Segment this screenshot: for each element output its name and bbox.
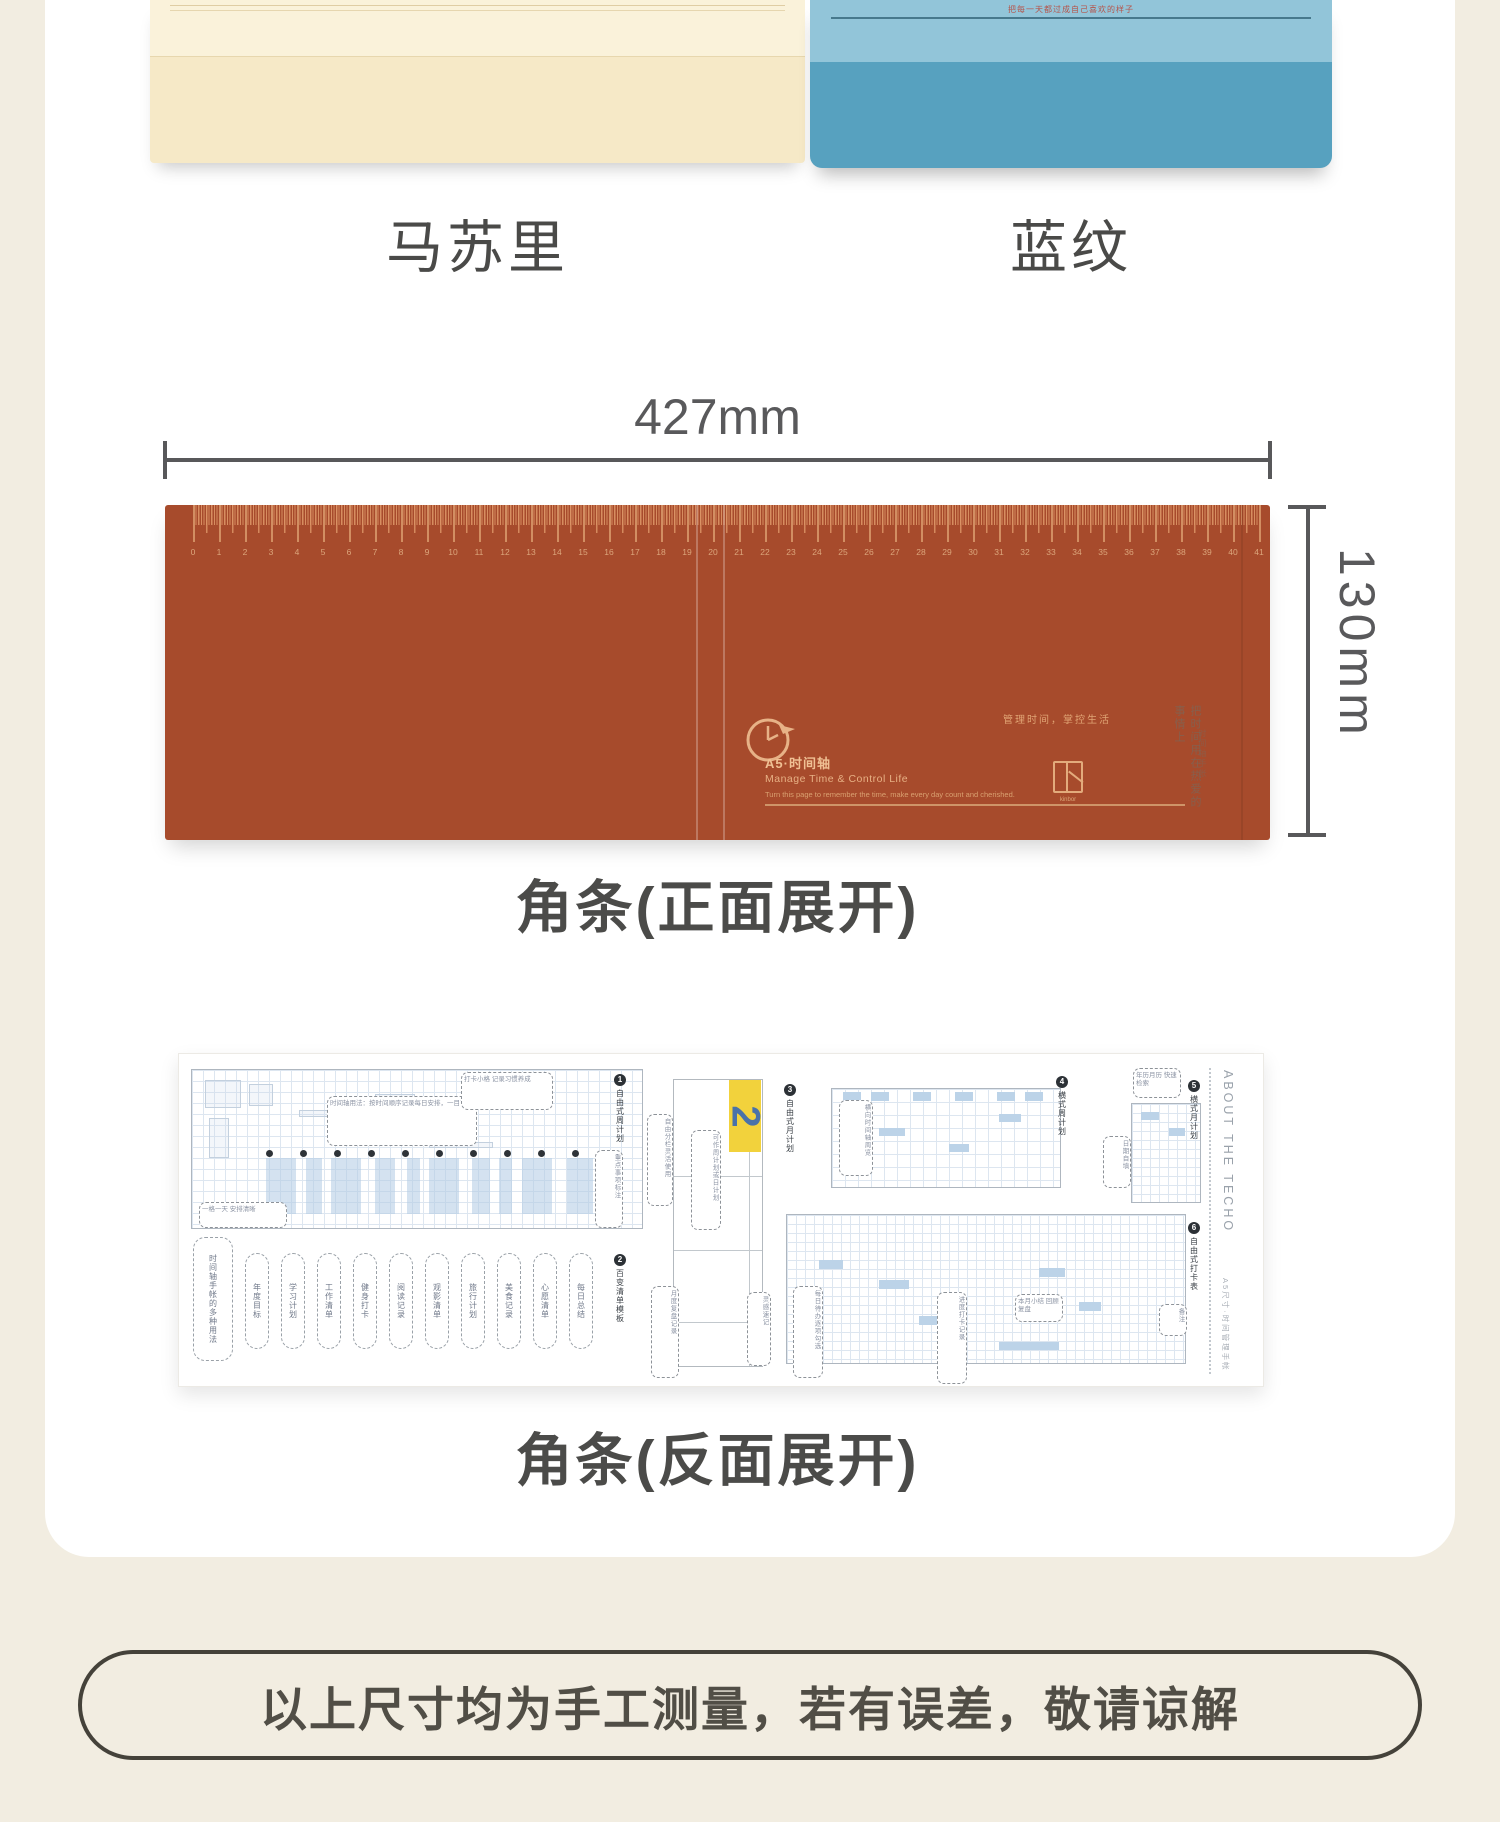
timeline-band (429, 1158, 459, 1214)
ruler-number: 8 (392, 547, 410, 557)
timeline-dot (334, 1150, 341, 1157)
page-number-block: 2 (729, 1080, 761, 1152)
timeline-dot (504, 1150, 511, 1157)
ruler-number: 16 (600, 547, 618, 557)
ruler-number: 7 (366, 547, 384, 557)
about-dotted-divider (1209, 1068, 1211, 1374)
ruler-cm-tick (921, 505, 923, 542)
strip-underline (765, 804, 1185, 806)
dimension-tick (1288, 833, 1326, 837)
timeline-dot (266, 1150, 273, 1157)
ruler-cm-tick (609, 505, 611, 542)
capsule-text: 观影清单 (432, 1283, 443, 1319)
ruler-number: 37 (1146, 547, 1164, 557)
table-highlight-cell (819, 1260, 843, 1269)
section-label-text: 百变清单模板 (615, 1269, 626, 1323)
section-label: 4横式周计划 (1055, 1076, 1069, 1136)
list-capsule: 健身打卡 (353, 1253, 377, 1349)
annotation-callout: 一格一天 安排清晰 (199, 1202, 287, 1228)
ruler-cm-tick (869, 505, 871, 542)
ruler-cm-tick (583, 505, 585, 542)
table-highlight-cell (913, 1092, 931, 1101)
section-number-badge: 5 (1188, 1080, 1200, 1092)
ruler-cm-tick (1155, 505, 1157, 542)
capsule-text: 旅行计划 (468, 1283, 479, 1319)
calendar-doodle (249, 1084, 273, 1106)
ruler-number: 28 (912, 547, 930, 557)
list-capsule: 工作清单 (317, 1253, 341, 1349)
ruler-number: 5 (314, 547, 332, 557)
dimension-tick (1268, 441, 1272, 479)
table-highlight-cell (1141, 1112, 1159, 1120)
section-number-badge: 1 (614, 1074, 626, 1086)
ruler-cm-tick (1051, 505, 1053, 542)
annotation-callout: 每日待办逐项勾选 (793, 1286, 823, 1378)
ruler-number: 13 (522, 547, 540, 557)
disclaimer-box: 以上尺寸均为手工测量，若有误差，敬请谅解 (78, 1650, 1422, 1760)
ruler-cm-tick (1077, 505, 1079, 542)
section-label-text: 自由式周计划 (615, 1089, 626, 1143)
ruler-cm-tick (791, 505, 793, 542)
calendar-doodle (209, 1118, 229, 1158)
strip-title-en: Manage Time & Control Life (765, 773, 908, 785)
annotation-callout: 时间轴用法：按时间顺序记录每日安排，一目了然 (327, 1096, 477, 1146)
ruler-cm-tick (947, 505, 949, 542)
ruler-cm-tick (843, 505, 845, 542)
brand-logo-icon (1053, 761, 1083, 793)
front-strip-caption: 角条(正面展开) (165, 862, 1270, 944)
ruler-number: 29 (938, 547, 956, 557)
timeline-dot (470, 1150, 477, 1157)
ruler-cm-tick (271, 505, 273, 542)
ruler-number: 36 (1120, 547, 1138, 557)
ruler-number: 11 (470, 547, 488, 557)
fold-line (723, 505, 725, 840)
timeline-dot (436, 1150, 443, 1157)
table-highlight-cell (997, 1092, 1015, 1101)
ruler-cm-tick (375, 505, 377, 542)
annotation-callout: 日期自填 (1103, 1136, 1131, 1188)
product-detail-page: 把每一天都过成自己喜欢的样子 马苏里 蓝纹 427mm 012345678910… (0, 0, 1500, 1822)
section-label-text: 横式月计划 (1189, 1095, 1200, 1140)
ruler-number: 25 (834, 547, 852, 557)
timeline-band (375, 1158, 395, 1214)
annotation-callout: 月度复盘记录 (651, 1286, 679, 1378)
ruler-number: 23 (782, 547, 800, 557)
ruler-number: 17 (626, 547, 644, 557)
ruler-cm-tick (193, 505, 195, 542)
annotation-callout: 可作周计划或日计划 (691, 1130, 721, 1230)
content-card: 把每一天都过成自己喜欢的样子 马苏里 蓝纹 427mm 012345678910… (45, 0, 1455, 1557)
section-label: 3自由式月计划 (783, 1084, 797, 1153)
notebook-photo-blue: 把每一天都过成自己喜欢的样子 (810, 0, 1332, 168)
vertical-note-small: 时间轴手帐 (1197, 729, 1208, 819)
disclaimer-text: 以上尺寸均为手工测量，若有误差，敬请谅解 (260, 1671, 1240, 1740)
capsule-text: 阅读记录 (396, 1283, 407, 1319)
annotation-callout: 横向时间轴周览 (839, 1100, 873, 1176)
ruler-cm-tick (739, 505, 741, 542)
page-number-text: 2 (723, 1105, 768, 1127)
cover-divider-line (831, 17, 1311, 19)
table-highlight-cell (879, 1280, 909, 1289)
section-number-badge: 4 (1056, 1076, 1068, 1088)
timeline-dot (402, 1150, 409, 1157)
section-number-badge: 6 (1188, 1222, 1200, 1234)
ruler-cm-tick (635, 505, 637, 542)
crease-line (1241, 505, 1243, 840)
ruler-mm-ticks (193, 505, 1261, 525)
ruler-number: 10 (444, 547, 462, 557)
table-highlight-cell (1169, 1128, 1185, 1136)
strip-slogan: 管理时间，掌控生活 (1003, 711, 1111, 726)
ruler-cm-tick (505, 505, 507, 542)
timeline-dot (572, 1150, 579, 1157)
list-capsule: 旅行计划 (461, 1253, 485, 1349)
ruler-cm-tick (1103, 505, 1105, 542)
ruler-cm-tick (1233, 505, 1235, 542)
table-highlight-cell (1025, 1092, 1043, 1101)
annotation-callout: 自由分栏灵活使用 (647, 1114, 673, 1206)
cover-stitch-line (170, 10, 786, 11)
ruler-number: 4 (288, 547, 306, 557)
timeline-band (306, 1158, 322, 1214)
width-dimension-label: 427mm (165, 388, 1270, 446)
timeline-band (567, 1158, 593, 1214)
ruler-number: 22 (756, 547, 774, 557)
timeline-dot (368, 1150, 375, 1157)
ruler-number: 38 (1172, 547, 1190, 557)
section-label: 1自由式周计划 (613, 1074, 627, 1143)
ruler-number: 26 (860, 547, 878, 557)
timeline-band (522, 1158, 552, 1214)
list-capsule: 心愿清单 (533, 1253, 557, 1349)
ruler-number: 24 (808, 547, 826, 557)
dimension-tick (163, 441, 167, 479)
panel-divider (674, 1250, 762, 1251)
section-label-text: 自由式打卡表 (1189, 1237, 1200, 1291)
about-techo-title: ABOUT THE TECHO (1221, 1070, 1235, 1233)
capsule-text: 美食记录 (504, 1283, 515, 1319)
ruler-cm-tick (479, 505, 481, 542)
ruler-number: 15 (574, 547, 592, 557)
logo-split-line (1066, 763, 1068, 791)
capsule-text: 年度目标 (252, 1283, 263, 1319)
capsule-text: 每日总结 (576, 1283, 587, 1319)
back-strip-caption: 角条(反面展开) (165, 1415, 1270, 1497)
capsule-text: 工作清单 (324, 1283, 335, 1319)
section-label: 2百变清单模板 (613, 1254, 627, 1323)
timeline-dot (300, 1150, 307, 1157)
ruler-number: 6 (340, 547, 358, 557)
capsule-text: 学习计划 (288, 1283, 299, 1319)
capsule-text: 健身打卡 (360, 1283, 371, 1319)
strip-subtitle-en: Turn this page to remember the time, mak… (765, 790, 1175, 799)
ruler-cm-tick (895, 505, 897, 542)
color-option-label-lanwen: 蓝纹 (810, 215, 1332, 281)
section-number-badge: 3 (784, 1084, 796, 1096)
ruler-cm-tick (973, 505, 975, 542)
grid-panel (786, 1214, 1186, 1364)
fold-line (696, 505, 698, 840)
ruler-number: 39 (1198, 547, 1216, 557)
ruler-cm-tick (427, 505, 429, 542)
annotation-callout: 年历月历 快速检索 (1133, 1068, 1181, 1098)
ruler-number: 19 (678, 547, 696, 557)
ruler-number: 32 (1016, 547, 1034, 557)
ruler-number: 3 (262, 547, 280, 557)
height-dimension-label: 130mm (1328, 548, 1386, 740)
notebook-photo-cream (150, 0, 805, 163)
ruler-cm-tick (453, 505, 455, 542)
ruler-number: 0 (184, 547, 202, 557)
ruler-cm-tick (245, 505, 247, 542)
table-highlight-cell (955, 1092, 973, 1101)
ruler-number: 31 (990, 547, 1008, 557)
ruler-number: 41 (1250, 547, 1268, 557)
list-capsule: 每日总结 (569, 1253, 593, 1349)
section-label-text: 自由式月计划 (785, 1099, 796, 1153)
ruler-number: 2 (236, 547, 254, 557)
logo-diagonal-line (1068, 771, 1083, 783)
table-highlight-cell (999, 1114, 1021, 1122)
height-dimension-line (1306, 507, 1310, 837)
dimension-tick (1288, 505, 1326, 509)
ruler-cm-tick (687, 505, 689, 542)
ruler-number: 1 (210, 547, 228, 557)
ruler-number: 35 (1094, 547, 1112, 557)
ruler-cm-tick (999, 505, 1001, 542)
table-highlight-cell (871, 1092, 889, 1101)
timeline-band (407, 1158, 420, 1214)
brand-logo-text: kinbor (1051, 797, 1085, 803)
backside-strip: 2 ABOUT THE TECHO A5尺寸·时间管理手帐 时间轴手帐的多种用法… (178, 1053, 1264, 1387)
strip-title-cn: A5·时间轴 (765, 753, 831, 772)
annotation-callout: 打卡小格 记录习惯养成 (461, 1072, 553, 1110)
annotation-callout: 备注 (1159, 1304, 1187, 1336)
table-highlight-cell (999, 1342, 1059, 1350)
list-capsule: 美食记录 (497, 1253, 521, 1349)
annotation-callout: 灵感速记 (747, 1292, 771, 1366)
section-label: 6自由式打卡表 (1187, 1222, 1201, 1291)
section-label-text: 横式周计划 (1057, 1091, 1068, 1136)
ruler-number: 21 (730, 547, 748, 557)
ruler-cm-tick (323, 505, 325, 542)
ruler-number: 9 (418, 547, 436, 557)
ruler-number: 12 (496, 547, 514, 557)
timeline-dot (538, 1150, 545, 1157)
ruler-number: 40 (1224, 547, 1242, 557)
ruler-number: 18 (652, 547, 670, 557)
annotation-callout: 重点事项标注 (595, 1150, 623, 1228)
cover-stitch-line (170, 5, 786, 6)
timeline-band (499, 1158, 512, 1214)
list-capsule: 时间轴手帐的多种用法 (193, 1237, 233, 1361)
ruler-cm-tick (297, 505, 299, 542)
ruler-cm-tick (817, 505, 819, 542)
ruler-cm-tick (661, 505, 663, 542)
capsule-text: 时间轴手帐的多种用法 (208, 1254, 219, 1344)
calendar-doodle (205, 1080, 241, 1108)
section-number-badge: 2 (614, 1254, 626, 1266)
ruler-number: 33 (1042, 547, 1060, 557)
table-highlight-cell (879, 1128, 905, 1136)
ruler-cm-tick (1259, 505, 1261, 542)
table-highlight-cell (1039, 1268, 1065, 1277)
ruler-cm-tick (557, 505, 559, 542)
width-dimension-line (165, 458, 1270, 462)
annotation-callout: 进度打卡记录 (937, 1292, 967, 1384)
list-capsule: 年度目标 (245, 1253, 269, 1349)
ruler-number: 14 (548, 547, 566, 557)
ruler-cm-tick (531, 505, 533, 542)
table-highlight-cell (949, 1144, 969, 1152)
ruler-cm-tick (1129, 505, 1131, 542)
cover-slogan-text: 把每一天都过成自己喜欢的样子 (831, 4, 1311, 15)
color-option-label-masuri: 马苏里 (150, 215, 805, 281)
ruler-cm-tick (1181, 505, 1183, 542)
section-label: 5横式月计划 (1187, 1080, 1201, 1140)
ruler-cm-tick (1207, 505, 1209, 542)
ruler-cm-tick (713, 505, 715, 542)
ruler-cm-tick (219, 505, 221, 542)
timeline-band (472, 1158, 490, 1214)
ruler-number: 30 (964, 547, 982, 557)
notebook-cover-flap (150, 0, 805, 57)
ruler-cm-tick (349, 505, 351, 542)
list-capsule: 阅读记录 (389, 1253, 413, 1349)
annotation-callout: 本月小结 回顾复盘 (1015, 1294, 1063, 1322)
ruler-cm-tick (765, 505, 767, 542)
table-highlight-cell (1079, 1302, 1101, 1311)
list-capsule: 观影清单 (425, 1253, 449, 1349)
ruler-number: 34 (1068, 547, 1086, 557)
ruler-number: 27 (886, 547, 904, 557)
corner-strip-front: 0123456789101112131415161718192021222324… (165, 505, 1270, 840)
timeline-band (331, 1158, 361, 1214)
ruler-number: 20 (704, 547, 722, 557)
about-techo-subtitle: A5尺寸·时间管理手帐 (1220, 1278, 1231, 1372)
ruler-cm-tick (401, 505, 403, 542)
capsule-text: 心愿清单 (540, 1283, 551, 1319)
list-capsule: 学习计划 (281, 1253, 305, 1349)
ruler-cm-tick (1025, 505, 1027, 542)
